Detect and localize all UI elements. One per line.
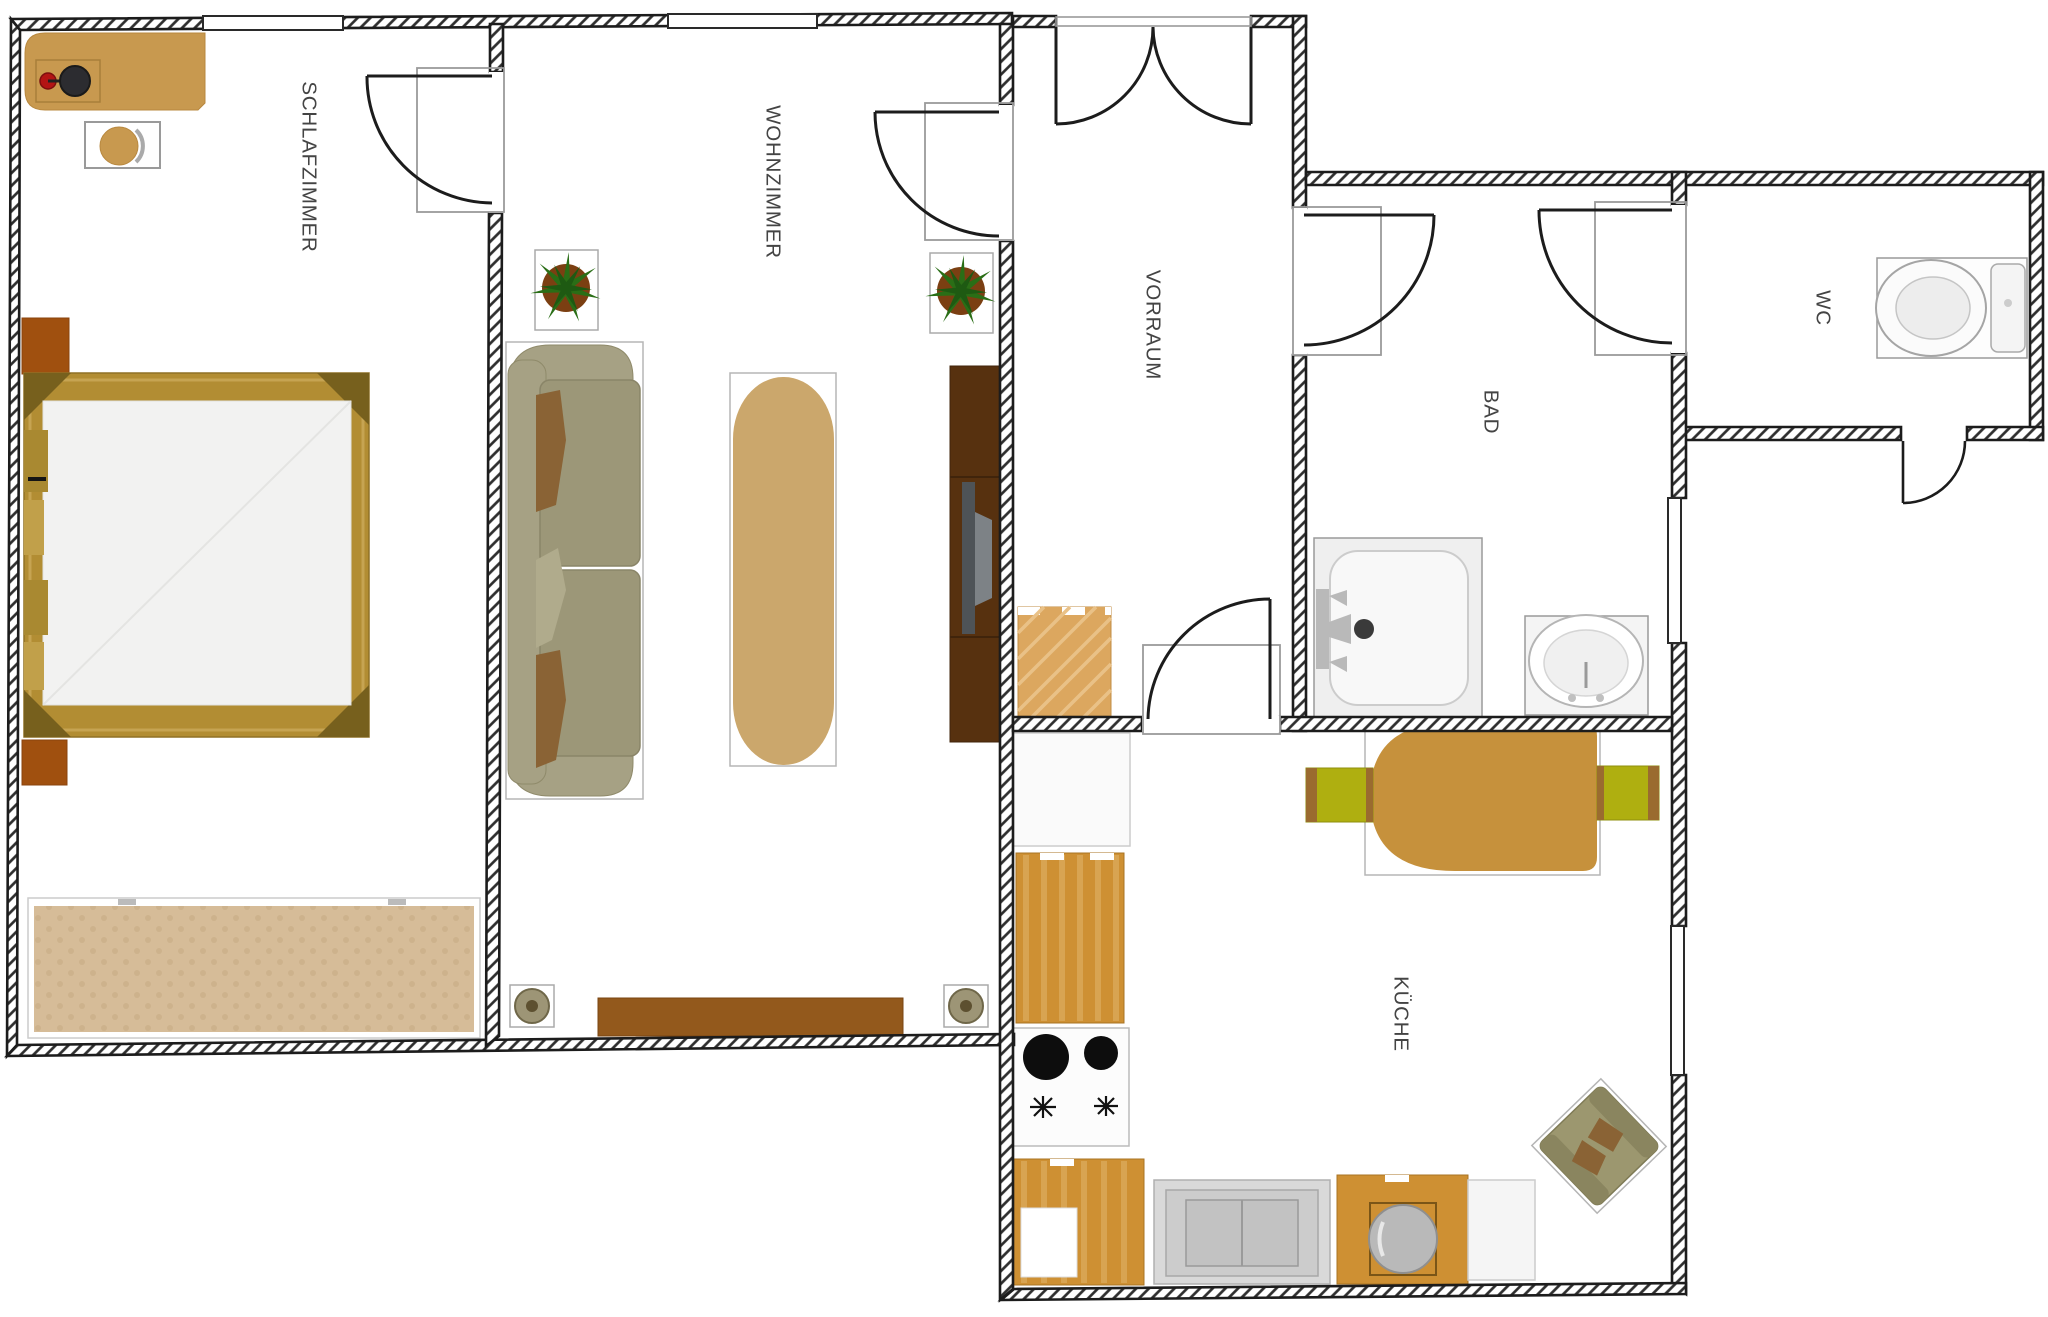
- svg-text:WOHNZIMMER: WOHNZIMMER: [762, 105, 785, 259]
- svg-text:WC: WC: [1812, 290, 1835, 326]
- svg-text:SCHLAFZIMMER: SCHLAFZIMMER: [298, 81, 321, 252]
- svg-text:BAD: BAD: [1480, 390, 1503, 435]
- svg-text:VORRAUM: VORRAUM: [1142, 270, 1165, 380]
- svg-text:KÜCHE: KÜCHE: [1390, 976, 1413, 1052]
